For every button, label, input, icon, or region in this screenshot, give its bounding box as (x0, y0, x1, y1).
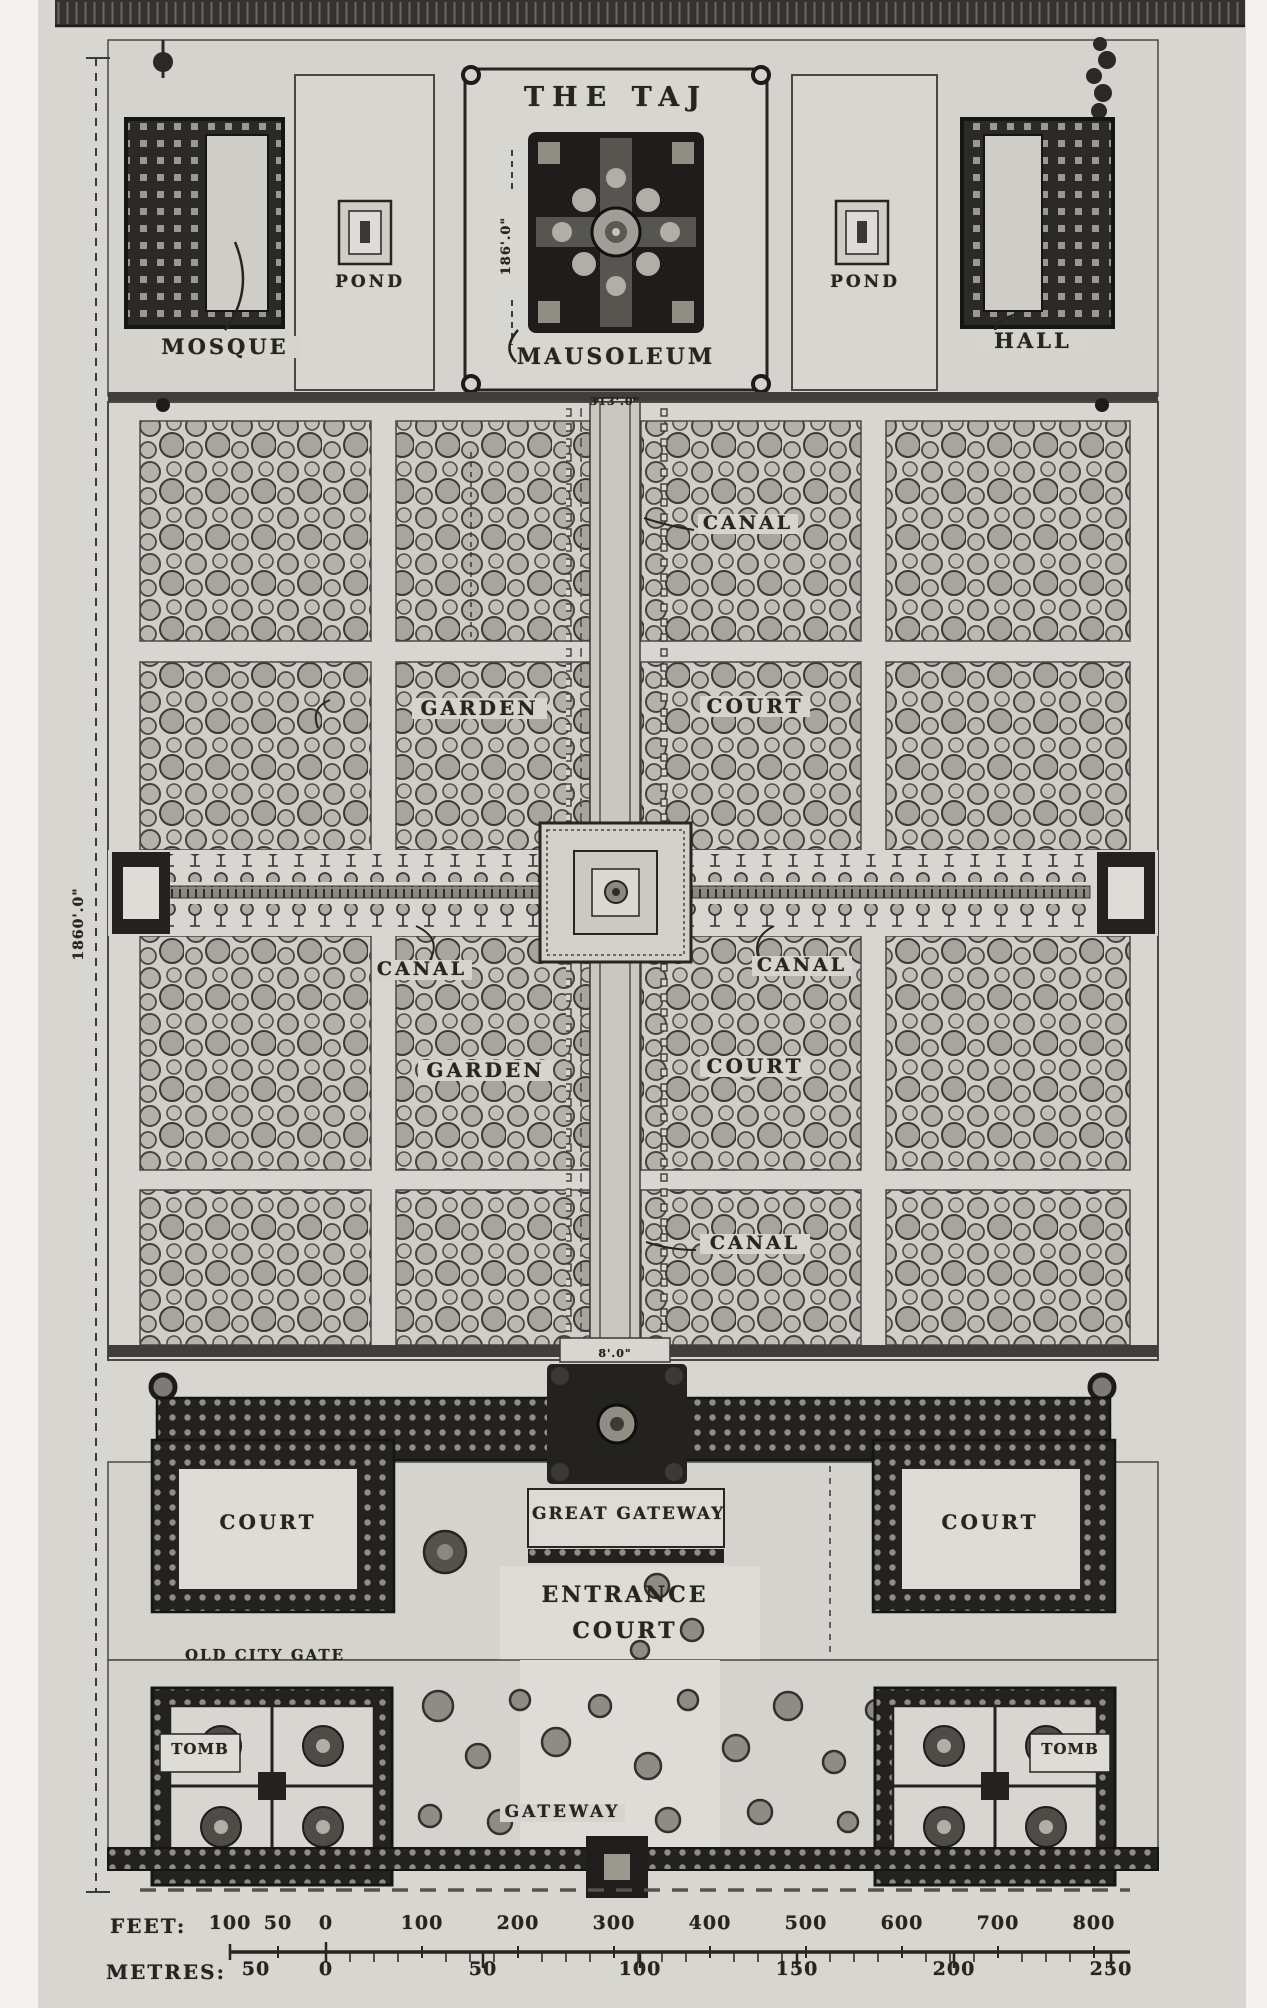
feet-scale-label: FEET: (110, 1916, 202, 1937)
feet-tick-100: 100 (392, 1914, 452, 1934)
garden-upper-label: GARDEN (412, 698, 547, 719)
enclosure-dimension: 1860'.0" (72, 868, 87, 980)
feet-tick-0: 0 (296, 1914, 356, 1934)
tomb-right-label: TOMB (1032, 1742, 1108, 1758)
river-band (55, 0, 1245, 26)
pond-right-label: POND (825, 274, 905, 292)
mausoleum-label: MAUSOLEUM (511, 346, 721, 369)
metres-tick-0: 0 (296, 1960, 356, 1980)
metres-tick-150: 150 (767, 1960, 827, 1980)
feet-tick-800: 800 (1064, 1914, 1124, 1934)
feet-tick-400: 400 (680, 1914, 740, 1934)
court-upper-label: COURT (700, 696, 810, 717)
garden-path-dimension: 8'.0" (582, 1348, 648, 1360)
canal-lower-label: CANAL (700, 1234, 810, 1254)
taj-plan-page: THE TAJ POND POND MOSQUE HALL MAUSOLEUM … (0, 0, 1267, 2008)
entrance-court-label-line1: ENTRANCE (510, 1584, 740, 1607)
entrance-court-right-label: COURT (930, 1512, 1050, 1533)
plan-drawing (0, 0, 1267, 2008)
feet-tick-300: 300 (584, 1914, 644, 1934)
metres-tick-200: 200 (924, 1960, 984, 1980)
mosque-label: MOSQUE (150, 336, 300, 358)
outer-court-drawing (108, 1660, 1158, 1898)
hall-label: HALL (978, 330, 1088, 352)
entrance-court-left-label: COURT (208, 1512, 328, 1533)
gateway-label: GATEWAY (500, 1804, 625, 1822)
great-gateway-label: GREAT GATEWAY (532, 1506, 722, 1524)
feet-tick-700: 700 (968, 1914, 1028, 1934)
entrance-court-label-line2: COURT (510, 1620, 740, 1643)
feet-tick-600: 600 (872, 1914, 932, 1934)
pond-left-label: POND (330, 274, 410, 292)
metres-tick-50l: 50 (226, 1960, 286, 1980)
metres-tick-250: 250 (1081, 1960, 1141, 1980)
feet-tick-200: 200 (488, 1914, 548, 1934)
metres-tick-100: 100 (610, 1960, 670, 1980)
plan-title: THE TAJ (501, 84, 731, 112)
metres-scale-label: METRES: (106, 1962, 230, 1983)
scale-bars (230, 1942, 1130, 1968)
canal-mid-left-label: CANAL (372, 960, 472, 980)
platform-dimension: 313'.0" (560, 396, 670, 408)
tomb-left-label: TOMB (162, 1742, 238, 1758)
canal-upper-label: CANAL (698, 514, 798, 534)
mausoleum-dimension: 186'.0" (500, 200, 514, 292)
court-lower-label: COURT (700, 1056, 810, 1077)
metres-tick-50: 50 (453, 1960, 513, 1980)
canal-mid-right-label: CANAL (752, 956, 852, 976)
garden-lower-label: GARDEN (418, 1060, 553, 1081)
feet-tick-500: 500 (776, 1914, 836, 1934)
outer-court-caption: OLD CITY GATE (160, 1648, 370, 1664)
